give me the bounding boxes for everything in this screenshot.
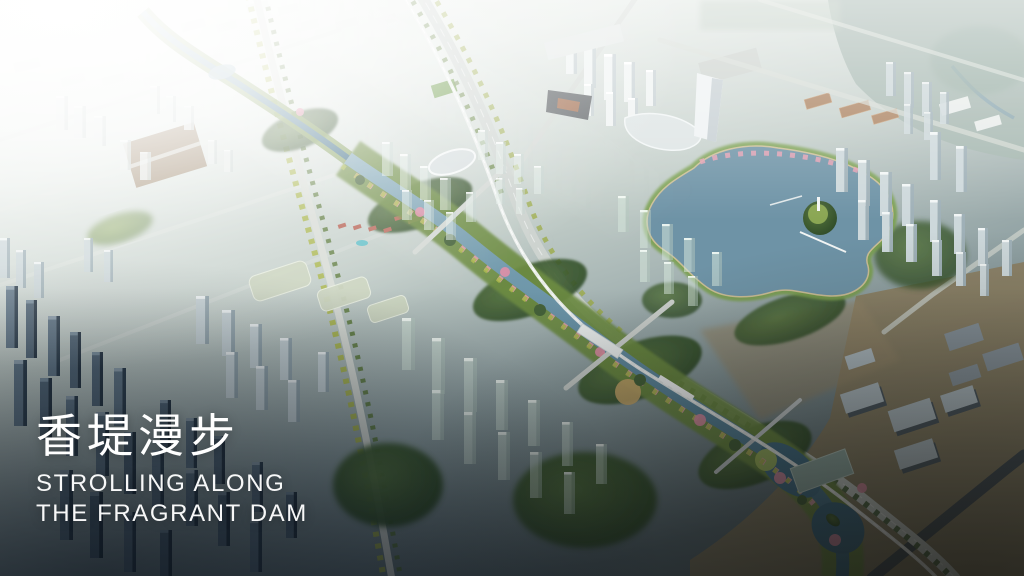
page-subtitle-english: STROLLING ALONG THE FRAGRANT DAM [36,469,308,529]
page-title-chinese: 香堤漫步 [36,410,308,463]
title-block: 香堤漫步 STROLLING ALONG THE FRAGRANT DAM [36,410,308,529]
subtitle-line-1: STROLLING ALONG [36,470,285,497]
subtitle-line-2: THE FRAGRANT DAM [36,500,308,527]
masterplan-rendering: 香堤漫步 STROLLING ALONG THE FRAGRANT DAM [0,0,1024,576]
